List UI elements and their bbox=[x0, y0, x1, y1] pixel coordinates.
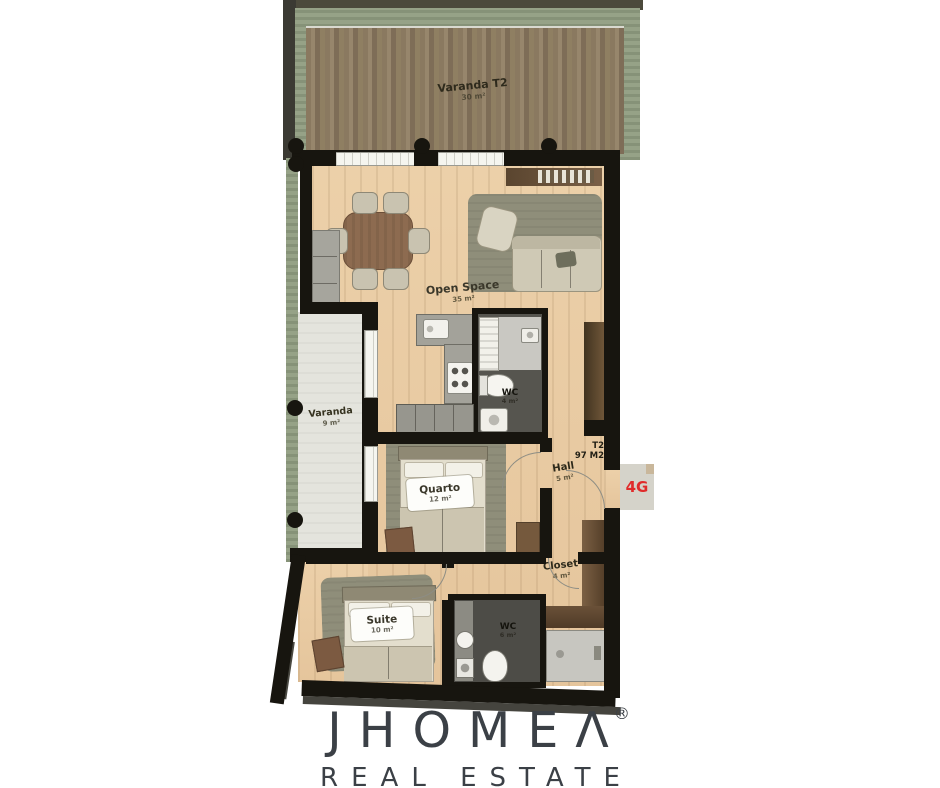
room-label-wc-top: WC 4 m² bbox=[488, 388, 532, 406]
wc-suite-sink bbox=[456, 631, 474, 649]
wc-top-toilet-tank bbox=[479, 375, 488, 396]
sideboard-mat bbox=[538, 170, 594, 183]
closet-wardrobe-bottom bbox=[540, 606, 604, 628]
quarto-hall-wall-upper bbox=[540, 438, 552, 452]
badge-label: 4G bbox=[626, 478, 649, 496]
dining-chair bbox=[383, 192, 409, 214]
quarto-hall-wall-lower bbox=[540, 488, 552, 558]
brand-wordmark: JHOMEΛ® bbox=[0, 702, 940, 759]
shower-fixture bbox=[594, 646, 601, 660]
room-label-wc-suite: WC 6 m² bbox=[486, 622, 530, 640]
balcony-glass-door bbox=[336, 152, 414, 166]
open-quarto-wall bbox=[378, 432, 546, 444]
left-cabinet bbox=[312, 230, 340, 312]
dining-chair bbox=[352, 268, 378, 290]
wc-top-basin bbox=[480, 408, 508, 432]
varanda-glass-door bbox=[364, 330, 378, 398]
room-area: 6 m² bbox=[486, 632, 530, 639]
floor-plan-image: Varanda T2 30 m² Varanda 9 m² Open Space… bbox=[0, 0, 940, 788]
column-dot bbox=[287, 400, 303, 416]
entry-door-gap bbox=[604, 470, 620, 508]
entry-tall-cabinet bbox=[584, 322, 604, 426]
blanket-seam bbox=[388, 647, 389, 679]
blanket-seam bbox=[442, 508, 443, 554]
wc-suite-toilet bbox=[482, 650, 508, 682]
right-wall-upper bbox=[604, 150, 620, 470]
closet-stub-wall bbox=[578, 552, 604, 564]
wardrobe-seam bbox=[434, 405, 435, 431]
quarto-wardrobe bbox=[396, 404, 474, 434]
brand-name: JHOMEΛ bbox=[327, 702, 626, 759]
right-wall-lower bbox=[604, 508, 620, 698]
column-dot bbox=[288, 138, 304, 154]
sofa-cushion-seam bbox=[541, 250, 542, 288]
suite-wc-wall-bottom bbox=[442, 600, 454, 692]
wardrobe-seam bbox=[415, 405, 416, 431]
left-wall-upper bbox=[300, 158, 312, 314]
room-area: 4 m² bbox=[488, 398, 532, 405]
vestibule-wall bbox=[454, 552, 546, 564]
brand-tagline: REAL ESTATE bbox=[0, 763, 940, 788]
wc-suite-washer bbox=[456, 658, 474, 678]
column-dot bbox=[288, 156, 304, 172]
registered-mark: ® bbox=[614, 704, 630, 723]
quarto-suite-wall bbox=[306, 552, 442, 564]
dining-chair bbox=[408, 228, 430, 254]
kitchen-stove bbox=[447, 362, 473, 394]
badge-corner bbox=[646, 464, 654, 474]
room-label-suite: Suite 10 m² bbox=[350, 606, 414, 641]
suite-bench bbox=[311, 636, 344, 672]
room-area: 10 m² bbox=[351, 624, 413, 636]
wc-top-sink bbox=[521, 328, 539, 343]
varanda-glass-door bbox=[364, 446, 378, 502]
sofa-pillow bbox=[555, 251, 577, 269]
varanda-garden-band bbox=[286, 158, 298, 562]
dining-chair bbox=[352, 192, 378, 214]
wardrobe-seam bbox=[453, 405, 454, 431]
dining-chair bbox=[383, 268, 409, 290]
varanda-floor bbox=[298, 312, 364, 554]
kitchen-sink bbox=[423, 319, 449, 339]
room-label-quarto: Quarto 12 m² bbox=[406, 475, 474, 512]
shower-drain bbox=[556, 650, 564, 658]
shower-top bbox=[479, 317, 499, 371]
cabinet-seam bbox=[313, 256, 337, 257]
sofa-backrest bbox=[512, 236, 600, 249]
column-dot bbox=[541, 138, 557, 154]
column-dot bbox=[414, 138, 430, 154]
balcony-glass-door bbox=[438, 152, 504, 166]
dining-table bbox=[343, 212, 413, 270]
wc-top-light-floor bbox=[499, 317, 541, 370]
cabinet-seam bbox=[313, 283, 337, 284]
quarto-pillow bbox=[404, 462, 444, 478]
column-dot bbox=[287, 512, 303, 528]
hall-stub-wall bbox=[584, 420, 604, 436]
brand-logo: JHOMEΛ® REAL ESTATE bbox=[0, 702, 940, 788]
